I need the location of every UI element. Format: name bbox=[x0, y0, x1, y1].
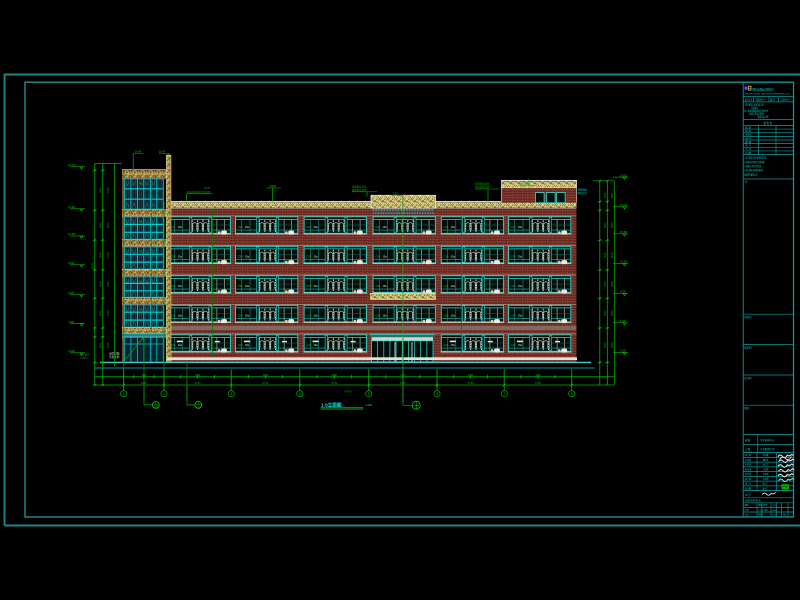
svg-text:6750: 6750 bbox=[400, 381, 406, 385]
svg-text:12.300: 12.300 bbox=[68, 233, 76, 236]
svg-text:C24: C24 bbox=[306, 225, 311, 229]
svg-text:3300: 3300 bbox=[535, 374, 541, 377]
svg-text:C24: C24 bbox=[444, 225, 449, 229]
svg-text:贴浅黄色面砖详见说明: 贴浅黄色面砖详见说明 bbox=[187, 190, 212, 194]
svg-text:屋面做法详见: 屋面做法详见 bbox=[352, 184, 367, 188]
svg-text:压顶详图: 压顶详图 bbox=[519, 182, 529, 186]
svg-text:15a: 15a bbox=[178, 256, 183, 259]
svg-text:会 签 栏: 会 签 栏 bbox=[764, 121, 773, 125]
svg-text:建筑构造说明: 建筑构造说明 bbox=[352, 188, 367, 192]
svg-text:15a: 15a bbox=[245, 285, 250, 288]
svg-text:C24: C24 bbox=[306, 284, 311, 288]
svg-text:贴浅黄色面砖: 贴浅黄色面砖 bbox=[475, 182, 490, 186]
svg-text:15a: 15a bbox=[382, 256, 387, 259]
svg-text:15a: 15a bbox=[178, 344, 183, 347]
svg-text:15a: 15a bbox=[518, 315, 523, 318]
svg-text:7: 7 bbox=[503, 392, 505, 396]
svg-text:-0.450: -0.450 bbox=[80, 357, 87, 360]
svg-text:15a: 15a bbox=[518, 344, 523, 347]
svg-text:15a: 15a bbox=[314, 285, 319, 288]
svg-text:详见建筑说明: 详见建筑说明 bbox=[475, 185, 490, 189]
svg-text:3000: 3000 bbox=[604, 192, 607, 198]
svg-text:CHINA LIGHT INDUSTRY CHENGDU D: CHINA LIGHT INDUSTRY CHENGDU DESIGN ENGI… bbox=[744, 93, 790, 96]
svg-text:1500: 1500 bbox=[107, 187, 110, 193]
svg-text:C24: C24 bbox=[511, 314, 516, 318]
svg-text:3.300: 3.300 bbox=[68, 321, 75, 324]
svg-text:15a: 15a bbox=[245, 256, 250, 259]
svg-text:12.300: 12.300 bbox=[620, 261, 628, 264]
svg-text:成都市设计院: 成都市设计院 bbox=[758, 115, 769, 119]
svg-text:9.300: 9.300 bbox=[68, 262, 75, 265]
svg-text:6750: 6750 bbox=[263, 381, 269, 385]
svg-text:C24: C24 bbox=[238, 284, 243, 288]
svg-text:工程: 工程 bbox=[745, 447, 751, 451]
svg-text:3000: 3000 bbox=[611, 252, 614, 258]
svg-text:3300: 3300 bbox=[141, 374, 147, 377]
svg-text:15a: 15a bbox=[178, 315, 183, 318]
svg-text:3000: 3000 bbox=[99, 342, 102, 348]
svg-text:2: 2 bbox=[163, 392, 165, 396]
svg-text:MQ1: MQ1 bbox=[139, 310, 145, 312]
svg-text:6: 6 bbox=[436, 392, 438, 396]
svg-text:3000: 3000 bbox=[99, 252, 102, 258]
svg-text:-0.450: -0.450 bbox=[68, 350, 75, 353]
svg-text:15a: 15a bbox=[314, 344, 319, 347]
svg-text:MQ1: MQ1 bbox=[139, 281, 145, 283]
svg-text:1500: 1500 bbox=[107, 222, 110, 228]
svg-text:3000: 3000 bbox=[99, 187, 102, 193]
svg-text:15a: 15a bbox=[451, 226, 456, 229]
svg-text:3300: 3300 bbox=[400, 374, 406, 377]
svg-text:1500: 1500 bbox=[107, 281, 110, 287]
svg-text:C24: C24 bbox=[444, 255, 449, 259]
svg-text:分隔缝: 分隔缝 bbox=[269, 184, 277, 188]
svg-text:15a: 15a bbox=[314, 315, 319, 318]
svg-text:19.470: 19.470 bbox=[620, 204, 628, 207]
svg-text:3000: 3000 bbox=[604, 310, 607, 316]
svg-text:MQ1: MQ1 bbox=[139, 252, 145, 254]
svg-text:6.300: 6.300 bbox=[620, 320, 627, 323]
svg-text:15a: 15a bbox=[451, 256, 456, 259]
svg-text:3000: 3000 bbox=[611, 222, 614, 228]
svg-text:C24: C24 bbox=[375, 225, 380, 229]
svg-text:6750: 6750 bbox=[535, 381, 541, 385]
svg-text:3000: 3000 bbox=[99, 222, 102, 228]
svg-text:1500: 1500 bbox=[107, 310, 110, 316]
svg-text:15a: 15a bbox=[382, 226, 387, 229]
svg-text:3000: 3000 bbox=[604, 281, 607, 287]
svg-text:4000: 4000 bbox=[141, 381, 147, 385]
svg-text:12.00: 12.00 bbox=[204, 187, 211, 190]
svg-text:15a: 15a bbox=[518, 285, 523, 288]
svg-text:C24: C24 bbox=[444, 343, 449, 347]
svg-text:C24: C24 bbox=[511, 225, 516, 229]
svg-text:3000: 3000 bbox=[604, 222, 607, 228]
svg-text:23.970: 23.970 bbox=[620, 174, 628, 177]
svg-text:1: 1 bbox=[123, 392, 125, 396]
svg-text:C24: C24 bbox=[511, 284, 516, 288]
svg-text:3: 3 bbox=[230, 392, 232, 396]
svg-text:C24: C24 bbox=[511, 343, 516, 347]
svg-text:C24: C24 bbox=[238, 255, 243, 259]
svg-text:C24: C24 bbox=[238, 225, 243, 229]
svg-text:3000: 3000 bbox=[611, 192, 614, 198]
svg-text:6.300: 6.300 bbox=[68, 292, 75, 295]
svg-text:15a: 15a bbox=[518, 256, 523, 259]
svg-text:15a: 15a bbox=[245, 315, 250, 318]
svg-text:C24: C24 bbox=[171, 343, 176, 347]
svg-text:15a: 15a bbox=[178, 226, 183, 229]
svg-text:9: 9 bbox=[571, 392, 573, 396]
svg-text:15a: 15a bbox=[314, 256, 319, 259]
svg-text:15a: 15a bbox=[245, 226, 250, 229]
svg-text:C24: C24 bbox=[375, 255, 380, 259]
svg-text:1:100: 1:100 bbox=[366, 403, 373, 407]
svg-text:C24: C24 bbox=[511, 255, 516, 259]
svg-text:C24: C24 bbox=[375, 314, 380, 318]
svg-text:9.300: 9.300 bbox=[620, 291, 627, 294]
svg-text:19470: 19470 bbox=[91, 262, 94, 270]
svg-text:6750: 6750 bbox=[331, 381, 337, 385]
svg-text:5: 5 bbox=[368, 392, 370, 396]
svg-text:C24: C24 bbox=[238, 314, 243, 318]
svg-text:宜宾县研培中心: 宜宾县研培中心 bbox=[761, 438, 776, 442]
svg-text:综合教学楼工程: 综合教学楼工程 bbox=[761, 447, 776, 451]
svg-text:15a: 15a bbox=[178, 285, 183, 288]
svg-text:4: 4 bbox=[299, 392, 301, 396]
svg-text:3000: 3000 bbox=[604, 252, 607, 258]
svg-text:15a: 15a bbox=[382, 285, 387, 288]
svg-text:C24: C24 bbox=[444, 314, 449, 318]
svg-text:15a: 15a bbox=[314, 226, 319, 229]
svg-text:40700: 40700 bbox=[345, 391, 353, 394]
svg-text:MQ1: MQ1 bbox=[139, 222, 145, 224]
svg-text:C24: C24 bbox=[306, 255, 311, 259]
svg-text:C24: C24 bbox=[171, 284, 176, 288]
svg-text:3000: 3000 bbox=[99, 310, 102, 316]
svg-text:3300: 3300 bbox=[468, 374, 474, 377]
svg-text:1500: 1500 bbox=[107, 252, 110, 258]
svg-text:6750: 6750 bbox=[468, 381, 474, 385]
svg-text:6750: 6750 bbox=[195, 381, 201, 385]
svg-text:C24: C24 bbox=[375, 284, 380, 288]
svg-text:1500: 1500 bbox=[107, 342, 110, 348]
svg-text:3000: 3000 bbox=[99, 281, 102, 287]
svg-text:15.300: 15.300 bbox=[68, 206, 76, 209]
svg-text:建设: 建设 bbox=[745, 438, 751, 442]
svg-text:15a: 15a bbox=[451, 285, 456, 288]
svg-text:19.470: 19.470 bbox=[68, 164, 76, 167]
svg-text:15a: 15a bbox=[451, 344, 456, 347]
svg-text:3300: 3300 bbox=[263, 374, 269, 377]
svg-text:C24: C24 bbox=[306, 314, 311, 318]
svg-text:C24: C24 bbox=[238, 343, 243, 347]
svg-text:3.300: 3.300 bbox=[620, 350, 627, 353]
svg-text:C24: C24 bbox=[444, 284, 449, 288]
svg-text:中国轻工业成都设计工程有限公司: 中国轻工业成都设计工程有限公司 bbox=[752, 87, 774, 91]
svg-text:15a: 15a bbox=[245, 344, 250, 347]
svg-text:15a: 15a bbox=[518, 226, 523, 229]
svg-text:3300: 3300 bbox=[332, 374, 338, 377]
svg-text:1:100: 1:100 bbox=[758, 510, 763, 512]
svg-text:审 定: 审 定 bbox=[745, 493, 751, 497]
svg-text:C24: C24 bbox=[171, 255, 176, 259]
svg-text:15a: 15a bbox=[382, 315, 387, 318]
svg-text:3000: 3000 bbox=[604, 342, 607, 348]
svg-text:15a: 15a bbox=[451, 315, 456, 318]
svg-text:C24: C24 bbox=[171, 314, 176, 318]
svg-text:MQ1: MQ1 bbox=[139, 184, 145, 186]
svg-text:3000: 3000 bbox=[611, 281, 614, 287]
svg-text:C24: C24 bbox=[306, 343, 311, 347]
svg-text:3000: 3000 bbox=[611, 310, 614, 316]
svg-text:15.300: 15.300 bbox=[620, 231, 628, 234]
svg-text:C24: C24 bbox=[171, 225, 176, 229]
svg-text:3000: 3000 bbox=[611, 342, 614, 348]
svg-text:3300: 3300 bbox=[195, 374, 201, 377]
